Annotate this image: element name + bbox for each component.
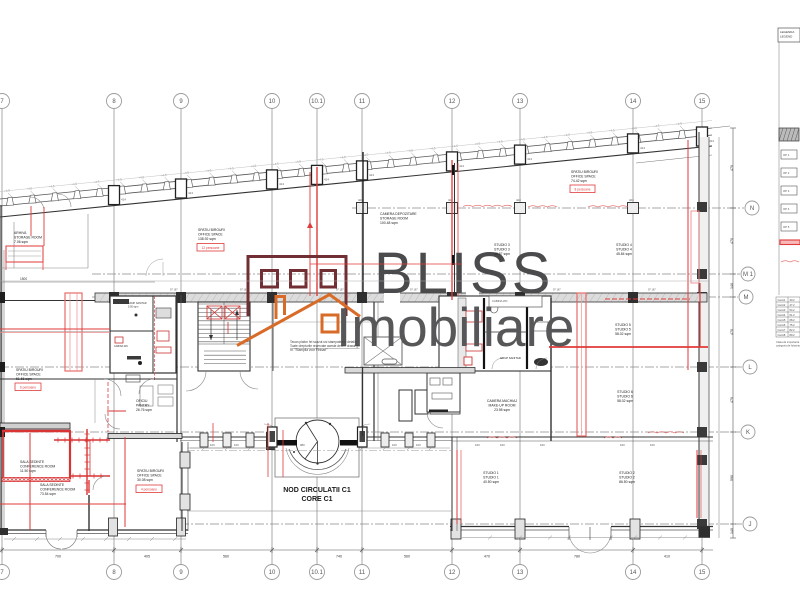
svg-text:11.50 sqm: 11.50 sqm: [20, 469, 36, 473]
svg-text:100.48 sqm: 100.48 sqm: [380, 221, 398, 225]
svg-text:OP 5: OP 5: [783, 225, 790, 229]
svg-text:OFICIU: OFICIU: [136, 399, 148, 403]
svg-text:Cat A5: Cat A5: [778, 318, 786, 322]
svg-text:OP 4: OP 4: [783, 207, 790, 211]
svg-text:73.54 sqm: 73.54 sqm: [40, 492, 56, 496]
svg-text:Cat A6: Cat A6: [778, 323, 786, 327]
svg-text:424: 424: [459, 164, 464, 168]
svg-text:CAMERA MACHIAJ: CAMERA MACHIAJ: [487, 399, 517, 403]
svg-text:45.84 sqm: 45.84 sqm: [616, 252, 632, 256]
svg-text:61.2: 61.2: [790, 313, 796, 317]
svg-text:470: 470: [730, 329, 734, 335]
svg-text:Cat A8: Cat A8: [778, 333, 786, 337]
svg-text:424: 424: [709, 139, 714, 143]
svg-text:6 persoane: 6 persoane: [20, 386, 36, 390]
svg-text:97 167: 97 167: [170, 289, 178, 292]
svg-text:nr. "Stampila voor Finisari": nr. "Stampila voor Finisari": [290, 348, 327, 352]
svg-text:160: 160: [620, 443, 625, 447]
svg-text:26.76 sqm: 26.76 sqm: [136, 408, 152, 412]
svg-text:424: 424: [324, 177, 329, 181]
svg-text:780: 780: [574, 555, 580, 559]
svg-text:OFFICE SPACE: OFFICE SPACE: [16, 372, 41, 376]
svg-text:160: 160: [234, 443, 239, 447]
svg-text:NOD CIRCULATII C1: NOD CIRCULATII C1: [283, 487, 351, 494]
svg-text:14: 14: [630, 570, 637, 576]
svg-text:58.02 sqm: 58.02 sqm: [617, 399, 633, 403]
svg-text:14: 14: [630, 99, 637, 105]
svg-text:OP 1: OP 1: [783, 153, 790, 157]
svg-text:140: 140: [730, 528, 734, 534]
svg-text:97 167: 97 167: [553, 289, 561, 292]
svg-text:STORAGE ROOM: STORAGE ROOM: [380, 216, 408, 220]
svg-text:97 167: 97 167: [240, 289, 248, 292]
svg-text:97 167: 97 167: [336, 289, 344, 292]
svg-text:OFFICE SPACE: OFFICE SPACE: [571, 174, 596, 178]
svg-text:STUDIO 2: STUDIO 2: [619, 471, 635, 475]
svg-text:58.02 sqm: 58.02 sqm: [615, 332, 631, 336]
svg-text:68.2: 68.2: [790, 318, 796, 322]
svg-text:160: 160: [650, 443, 655, 447]
svg-text:470: 470: [484, 555, 490, 559]
svg-text:SPATIU BIROURI: SPATIU BIROURI: [16, 368, 43, 372]
svg-text:4 persoane: 4 persoane: [141, 488, 157, 492]
svg-text:STUDIO 1: STUDIO 1: [483, 471, 499, 475]
svg-text:424: 424: [369, 173, 374, 177]
svg-text:13: 13: [517, 570, 524, 576]
svg-text:470: 470: [730, 165, 734, 171]
svg-text:160: 160: [416, 443, 421, 447]
svg-text:K: K: [746, 430, 750, 436]
svg-text:CONFERENCE ROOM: CONFERENCE ROOM: [20, 464, 55, 468]
svg-text:97 167: 97 167: [410, 289, 418, 292]
svg-text:980: 980: [300, 443, 305, 447]
svg-text:GRUP SANITAR: GRUP SANITAR: [500, 356, 521, 360]
svg-text:N: N: [750, 206, 754, 212]
svg-text:Cat A4: Cat A4: [778, 313, 786, 317]
svg-text:10.1: 10.1: [311, 99, 323, 105]
svg-text:15: 15: [699, 570, 706, 576]
svg-text:STUDIO 6: STUDIO 6: [617, 390, 633, 394]
svg-text:160: 160: [475, 443, 480, 447]
svg-text:SALA SEDINTE: SALA SEDINTE: [20, 460, 45, 464]
svg-text:160: 160: [392, 443, 397, 447]
svg-text:160: 160: [540, 443, 545, 447]
svg-text:Cat A2: Cat A2: [778, 303, 786, 307]
svg-text:Clasa de importanta a: Clasa de importanta a: [776, 340, 800, 344]
svg-text:SPATIU BIROURI: SPATIU BIROURI: [137, 469, 164, 473]
svg-text:CORE C1: CORE C1: [301, 496, 332, 503]
svg-text:89.2: 89.2: [790, 333, 796, 337]
svg-text:M: M: [744, 295, 749, 301]
svg-text:740: 740: [336, 555, 342, 559]
svg-text:5.50 sqm: 5.50 sqm: [128, 306, 138, 309]
svg-text:138.92 sqm: 138.92 sqm: [198, 237, 216, 241]
svg-text:424: 424: [640, 146, 645, 150]
svg-text:LEGENDA: LEGENDA: [780, 30, 794, 34]
svg-text:10: 10: [269, 570, 276, 576]
svg-text:OFFICE SPACE: OFFICE SPACE: [137, 473, 162, 477]
svg-text:CONFERENCE ROOM: CONFERENCE ROOM: [40, 487, 75, 491]
svg-text:424: 424: [188, 191, 193, 195]
svg-text:15: 15: [699, 99, 706, 105]
svg-text:1500: 1500: [20, 277, 27, 281]
svg-text:Cat A1: Cat A1: [778, 298, 786, 302]
svg-text:STUDIO 4: STUDIO 4: [616, 243, 632, 247]
svg-text:75.2: 75.2: [790, 323, 796, 327]
svg-text:82.2: 82.2: [790, 328, 796, 332]
svg-text:12 persoane: 12 persoane: [202, 246, 220, 250]
svg-text:560: 560: [404, 555, 410, 559]
svg-text:categoria de folosinta: categoria de folosinta: [776, 344, 800, 348]
svg-text:STUDIO 6: STUDIO 6: [617, 394, 633, 398]
svg-text:54.2: 54.2: [790, 308, 796, 312]
svg-text:560: 560: [223, 555, 229, 559]
svg-text:23.98 sqm: 23.98 sqm: [494, 408, 510, 412]
svg-text:STUDIO 2: STUDIO 2: [619, 475, 635, 479]
svg-text:424: 424: [629, 198, 634, 202]
svg-text:STUDIO 4: STUDIO 4: [616, 247, 632, 251]
svg-text:40.50 sqm: 40.50 sqm: [483, 480, 499, 484]
svg-text:40.2: 40.2: [790, 298, 796, 302]
svg-text:51.56 sqm: 51.56 sqm: [16, 377, 32, 381]
svg-text:700: 700: [55, 555, 61, 559]
svg-text:STORAGE ROOM: STORAGE ROOM: [14, 235, 42, 239]
svg-text:47.2: 47.2: [790, 303, 796, 307]
svg-text:160: 160: [500, 443, 505, 447]
svg-text:CAMERA DEPOZITARE: CAMERA DEPOZITARE: [380, 212, 417, 216]
svg-text:MAKE-UP ROOM: MAKE-UP ROOM: [489, 403, 516, 407]
svg-text:86.50 sqm: 86.50 sqm: [619, 480, 635, 484]
svg-text:SPATIU BIROURI: SPATIU BIROURI: [198, 228, 225, 232]
svg-text:CABINA WC: CABINA WC: [114, 345, 128, 348]
svg-text:470: 470: [730, 238, 734, 244]
svg-text:8 persoane: 8 persoane: [575, 188, 591, 192]
svg-text:SALA SEDINTE: SALA SEDINTE: [40, 483, 65, 487]
svg-text:97 167: 97 167: [648, 289, 656, 292]
svg-text:590: 590: [730, 475, 734, 481]
svg-text:424: 424: [121, 198, 126, 202]
svg-text:Cat A7: Cat A7: [778, 328, 786, 332]
svg-text:13: 13: [517, 99, 524, 105]
svg-text:7.06 sqm: 7.06 sqm: [14, 240, 28, 244]
svg-text:74.42 sqm: 74.42 sqm: [571, 179, 587, 183]
svg-text:STUDIO 3: STUDIO 3: [494, 243, 510, 247]
svg-text:10.1: 10.1: [311, 570, 323, 576]
svg-text:11: 11: [359, 570, 366, 576]
svg-text:12: 12: [449, 99, 456, 105]
svg-text:11: 11: [359, 99, 366, 105]
svg-text:424: 424: [279, 182, 284, 186]
svg-text:STUDIO 5: STUDIO 5: [615, 327, 631, 331]
svg-text:M 1: M 1: [743, 272, 754, 278]
svg-text:OP 2: OP 2: [783, 171, 790, 175]
svg-text:470: 470: [730, 397, 734, 403]
svg-text:STUDIO 3: STUDIO 3: [494, 247, 510, 251]
svg-text:LEGEND: LEGEND: [780, 35, 793, 39]
svg-text:Imobiliare: Imobiliare: [336, 296, 574, 358]
svg-text:40.87 sqm: 40.87 sqm: [494, 252, 510, 256]
svg-text:OFFICE SPACE: OFFICE SPACE: [198, 232, 223, 236]
svg-text:ARHIVA: ARHIVA: [14, 231, 27, 235]
svg-text:140: 140: [730, 283, 734, 289]
svg-text:STUDIO 5: STUDIO 5: [615, 323, 631, 327]
svg-text:160: 160: [210, 443, 215, 447]
svg-text:J: J: [749, 522, 752, 528]
svg-text:OP 3: OP 3: [783, 189, 790, 193]
svg-text:SPATIU BIROURI: SPATIU BIROURI: [571, 170, 598, 174]
svg-text:424: 424: [527, 157, 532, 161]
svg-text:410: 410: [664, 555, 670, 559]
svg-text:PANTRY: PANTRY: [136, 403, 150, 407]
svg-text:405: 405: [144, 555, 150, 559]
svg-text:STUDIO 1: STUDIO 1: [483, 475, 499, 479]
svg-text:Cat A3: Cat A3: [778, 308, 786, 312]
svg-text:424: 424: [516, 198, 521, 202]
svg-text:30.08 sqm: 30.08 sqm: [137, 478, 153, 482]
svg-text:10: 10: [269, 99, 276, 105]
svg-text:12: 12: [449, 570, 456, 576]
